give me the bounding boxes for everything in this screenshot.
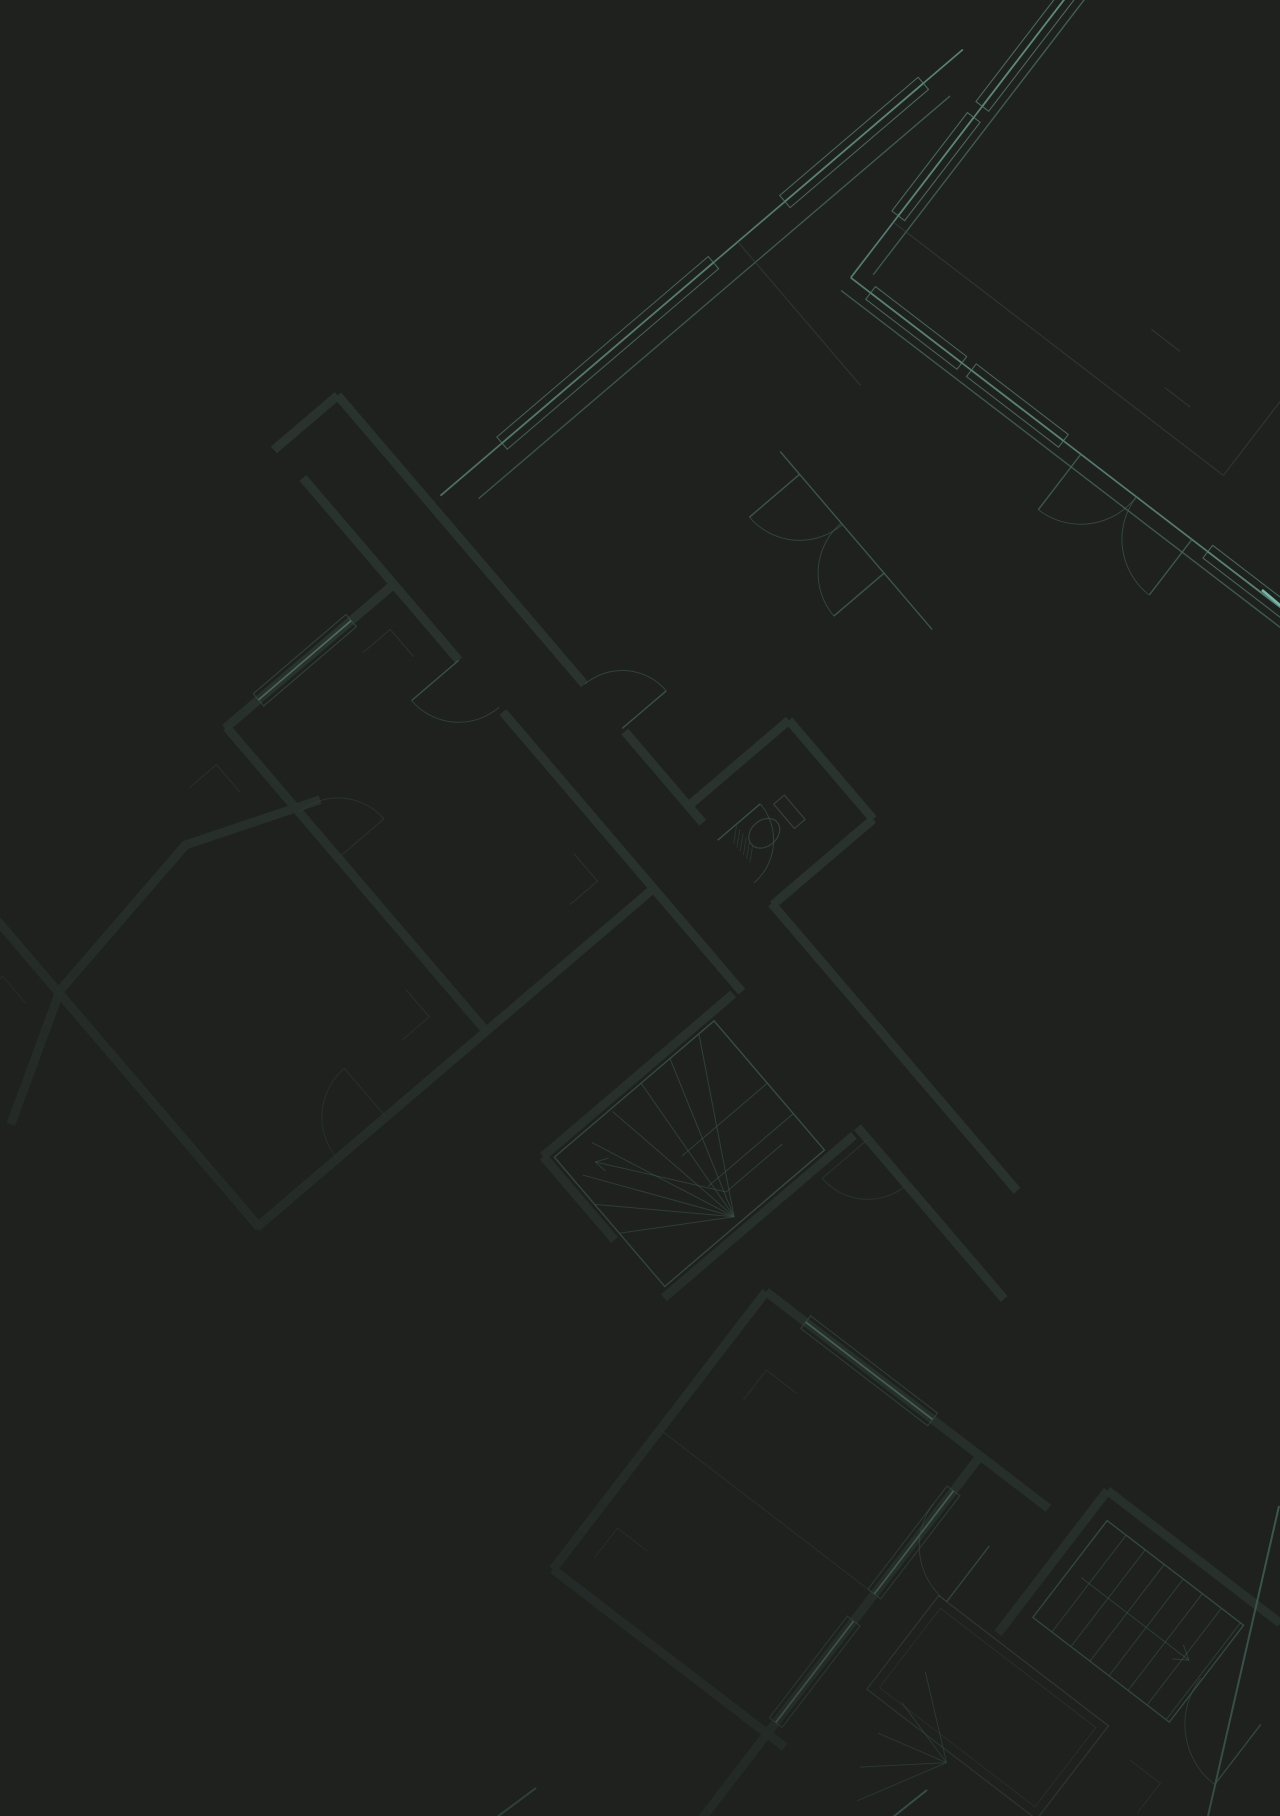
wall-line bbox=[851, 0, 1107, 278]
winder-stair-tread bbox=[629, 1059, 775, 1217]
furniture-corner-mark bbox=[1107, 1760, 1160, 1813]
wall-line bbox=[553, 1292, 766, 1570]
toilet-symbol bbox=[743, 812, 786, 854]
winder-stair-tread bbox=[898, 1702, 951, 1762]
wall-line bbox=[503, 712, 742, 992]
wall-line bbox=[274, 395, 338, 450]
furniture-corner-mark bbox=[0, 976, 26, 1027]
wall-line bbox=[893, 1790, 927, 1816]
wall-line bbox=[0, 920, 259, 1227]
wing-lower bbox=[0, 0, 1280, 1816]
window-glazing bbox=[502, 263, 713, 444]
window-glazing bbox=[898, 117, 973, 215]
door-leaf bbox=[749, 474, 799, 517]
winder-stair-tread bbox=[583, 1118, 734, 1274]
window-glazing bbox=[1208, 552, 1280, 637]
window-glazing bbox=[785, 83, 923, 201]
window-glazing bbox=[982, 0, 1072, 106]
wall-line bbox=[660, 1430, 874, 1594]
window-glazing bbox=[258, 621, 351, 700]
wall-line bbox=[789, 720, 873, 819]
wall-line bbox=[688, 720, 788, 806]
furniture-corner-mark bbox=[363, 629, 414, 680]
wall-line bbox=[773, 819, 873, 905]
window-glazing bbox=[971, 370, 1063, 441]
wall-line bbox=[497, 1788, 536, 1816]
floorplan-root bbox=[0, 0, 1280, 1816]
wall-line bbox=[610, 1459, 978, 1816]
door-leaf bbox=[344, 1068, 386, 1117]
door-swing-arc bbox=[1094, 497, 1192, 595]
wall-line bbox=[738, 242, 861, 386]
door-leaf bbox=[622, 691, 666, 729]
furniture-corner-mark bbox=[547, 854, 598, 905]
door-swing-arc bbox=[585, 647, 667, 729]
window-glazing bbox=[871, 293, 962, 363]
wall-line bbox=[873, 0, 1119, 275]
window-glazing bbox=[806, 1322, 933, 1419]
furniture-corner-mark bbox=[189, 765, 240, 816]
stair-tread bbox=[1166, 1623, 1240, 1720]
window-glazing bbox=[776, 1621, 854, 1723]
winder-stair-tread bbox=[878, 1712, 947, 1784]
door-swing-arc bbox=[1154, 1678, 1261, 1785]
wall-line bbox=[226, 727, 488, 1034]
furniture-corner-mark bbox=[594, 1528, 647, 1581]
table-symbol bbox=[554, 1021, 824, 1287]
wall-line bbox=[553, 1569, 785, 1747]
door-leaf bbox=[947, 1546, 990, 1602]
door-swing-arc bbox=[299, 773, 384, 858]
wall-line bbox=[543, 1156, 614, 1240]
furniture-corner-mark bbox=[378, 989, 429, 1040]
wall-line bbox=[772, 903, 1017, 1190]
door-swing-arc bbox=[412, 660, 499, 747]
door-swing-arc bbox=[791, 523, 884, 616]
wall-line bbox=[664, 1135, 854, 1297]
page-background bbox=[0, 0, 1280, 1816]
edge-accents bbox=[497, 590, 1280, 1816]
door-leaf bbox=[834, 573, 884, 616]
wall-line bbox=[625, 732, 703, 823]
wall-line bbox=[543, 994, 733, 1156]
stair-direction-arrow bbox=[1081, 1578, 1189, 1661]
wall-line bbox=[841, 290, 1280, 828]
wall-line bbox=[1208, 1506, 1279, 1816]
winder-stair-tread bbox=[857, 1741, 947, 1816]
winder-stair-tread bbox=[619, 1170, 734, 1281]
window-glazing bbox=[874, 1491, 953, 1594]
wall-line bbox=[1223, 214, 1280, 476]
door-swing-arc bbox=[296, 1068, 386, 1158]
wall-line bbox=[479, 96, 950, 499]
door-leaf bbox=[338, 819, 384, 858]
door-swing-arc bbox=[749, 474, 842, 567]
wall-line bbox=[998, 1491, 1108, 1634]
wing-upper bbox=[0, 0, 1280, 1816]
door-leaf bbox=[1149, 539, 1192, 595]
furniture-corner-mark bbox=[743, 1370, 796, 1423]
wall-line bbox=[851, 278, 1280, 816]
wall-line bbox=[1262, 590, 1280, 606]
floorplan-canvas bbox=[0, 0, 1280, 1816]
wall-line bbox=[1151, 329, 1180, 351]
door-leaf bbox=[1038, 454, 1081, 510]
door-swing-arc bbox=[718, 804, 797, 883]
wall-line bbox=[338, 395, 585, 684]
wall-line bbox=[1165, 388, 1190, 407]
door-leaf bbox=[412, 660, 459, 700]
wall-line bbox=[1107, 1491, 1280, 1624]
